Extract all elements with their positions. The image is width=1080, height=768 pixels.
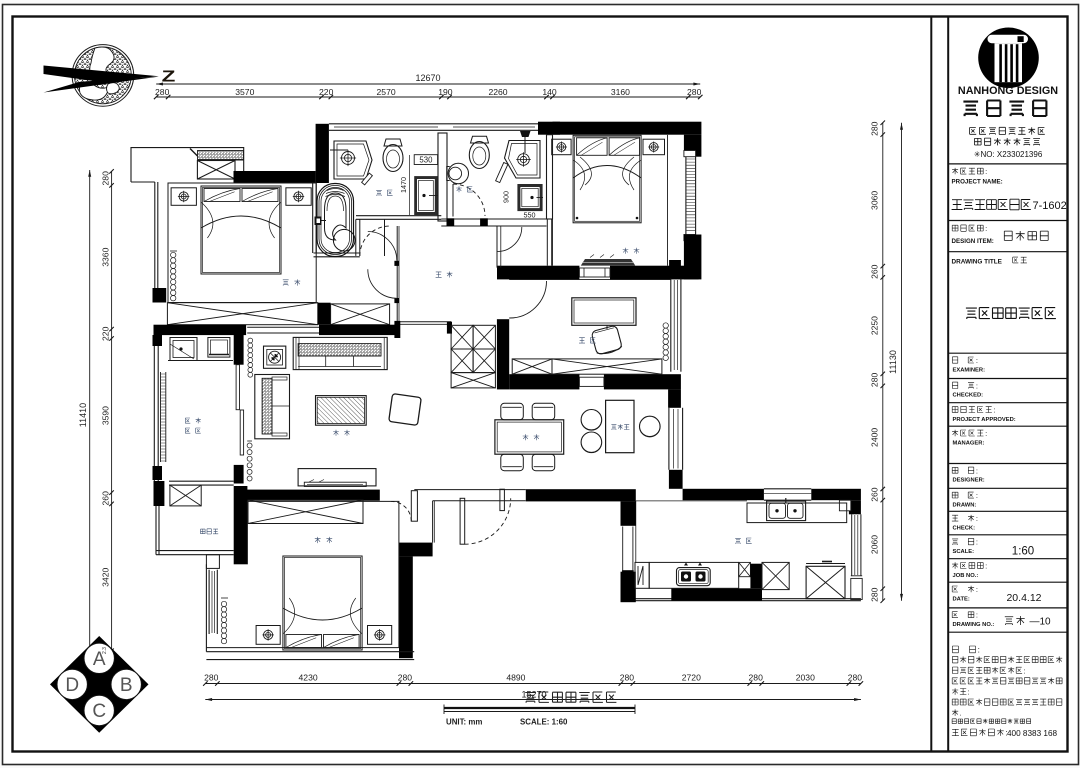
svg-text:—10: —10	[1029, 617, 1051, 628]
svg-text:DESIGNER:: DESIGNER:	[953, 478, 985, 484]
svg-text:3160: 3160	[611, 87, 630, 97]
svg-text::: :	[994, 406, 996, 415]
svg-text:4890: 4890	[506, 673, 525, 683]
svg-text:280: 280	[398, 673, 413, 683]
svg-text:280: 280	[749, 673, 764, 683]
svg-text:DRAWING NO.:: DRAWING NO.:	[953, 622, 995, 628]
svg-text:2030: 2030	[796, 673, 815, 683]
svg-text:280: 280	[101, 171, 111, 186]
svg-text::: :	[976, 356, 978, 365]
svg-text:220: 220	[319, 87, 334, 97]
svg-text:550: 550	[524, 211, 536, 220]
svg-text:4230: 4230	[299, 673, 318, 683]
svg-text:B: B	[120, 675, 133, 696]
svg-text:3570: 3570	[235, 87, 254, 97]
svg-text:220: 220	[101, 326, 111, 341]
svg-text:280: 280	[869, 587, 879, 602]
svg-text:PROJECT APPROVED:: PROJECT APPROVED:	[953, 417, 1016, 423]
svg-text:SCALE:: SCALE:	[953, 549, 975, 555]
svg-text::: :	[985, 429, 987, 438]
svg-text:20.4.12: 20.4.12	[1006, 592, 1041, 604]
svg-text:280: 280	[687, 87, 702, 97]
svg-text:3590: 3590	[101, 406, 111, 425]
svg-text:2260: 2260	[488, 87, 507, 97]
svg-text:JOB NO.:: JOB NO.:	[953, 573, 979, 579]
svg-text::: :	[976, 585, 978, 594]
svg-text::: :	[1024, 666, 1026, 675]
svg-text:3420: 3420	[101, 568, 111, 587]
svg-text:3360: 3360	[101, 247, 111, 266]
svg-text:UNIT: mm: UNIT: mm	[446, 718, 482, 727]
svg-text:✳NO: X233021396: ✳NO: X233021396	[974, 150, 1043, 159]
svg-text:140: 140	[542, 87, 557, 97]
svg-text:280: 280	[155, 87, 170, 97]
svg-text:2400: 2400	[869, 428, 879, 447]
svg-text:280: 280	[848, 673, 863, 683]
svg-text:190: 190	[438, 87, 453, 97]
svg-text:EXAMINER:: EXAMINER:	[953, 367, 986, 373]
svg-text::: :	[985, 167, 987, 176]
svg-text:Z: Z	[162, 69, 176, 86]
svg-text:11130: 11130	[888, 350, 898, 374]
svg-text:DATE:: DATE:	[953, 596, 970, 602]
svg-text:7-1602: 7-1602	[1033, 200, 1067, 212]
svg-text:DRAWN:: DRAWN:	[953, 503, 977, 509]
svg-text::: :	[978, 646, 980, 655]
svg-text::: :	[976, 466, 978, 475]
svg-text:C: C	[92, 701, 106, 722]
svg-text:900: 900	[502, 191, 511, 203]
svg-text:2060: 2060	[869, 535, 879, 554]
svg-text:12670: 12670	[415, 73, 440, 83]
svg-text:2720: 2720	[682, 673, 701, 683]
svg-text::: :	[976, 611, 978, 620]
svg-text:260: 260	[869, 487, 879, 502]
svg-text:280: 280	[869, 121, 879, 136]
svg-text:DESIGN ITEM:: DESIGN ITEM:	[952, 238, 994, 245]
svg-text:MANAGER:: MANAGER:	[953, 440, 985, 446]
svg-text:3060: 3060	[869, 191, 879, 210]
svg-text:D: D	[65, 675, 79, 696]
svg-text:2.3: 2.3	[102, 647, 108, 654]
svg-text:SCALE: 1:60: SCALE: 1:60	[520, 718, 568, 727]
svg-text:280: 280	[869, 373, 879, 388]
svg-text::: :	[985, 224, 987, 233]
svg-text:DRAWING TITLE: DRAWING TITLE	[952, 259, 1003, 266]
svg-text:2570: 2570	[377, 87, 396, 97]
svg-text:.: .	[960, 709, 962, 718]
svg-text:530: 530	[419, 156, 433, 165]
svg-text::: :	[985, 562, 987, 571]
svg-text:CHECK:: CHECK:	[953, 526, 976, 532]
svg-text:11410: 11410	[78, 403, 88, 427]
svg-text:1:60: 1:60	[1012, 546, 1034, 558]
svg-text:260: 260	[869, 264, 879, 279]
svg-text:280: 280	[204, 673, 219, 683]
svg-text::: :	[976, 538, 978, 547]
svg-text:280: 280	[620, 673, 635, 683]
svg-text::: :	[976, 514, 978, 523]
svg-text:400 8383 168: 400 8383 168	[1007, 729, 1058, 738]
svg-text:2250: 2250	[869, 316, 879, 335]
svg-text::: :	[976, 381, 978, 390]
svg-text::: :	[968, 688, 970, 697]
svg-text:1470: 1470	[399, 177, 408, 193]
svg-text::: :	[976, 491, 978, 500]
svg-text:NANHONG DESIGN: NANHONG DESIGN	[958, 85, 1058, 97]
svg-text:260: 260	[101, 491, 111, 506]
svg-text:CHECKED:: CHECKED:	[953, 393, 984, 399]
svg-text:PROJECT NAME:: PROJECT NAME:	[952, 179, 1003, 186]
